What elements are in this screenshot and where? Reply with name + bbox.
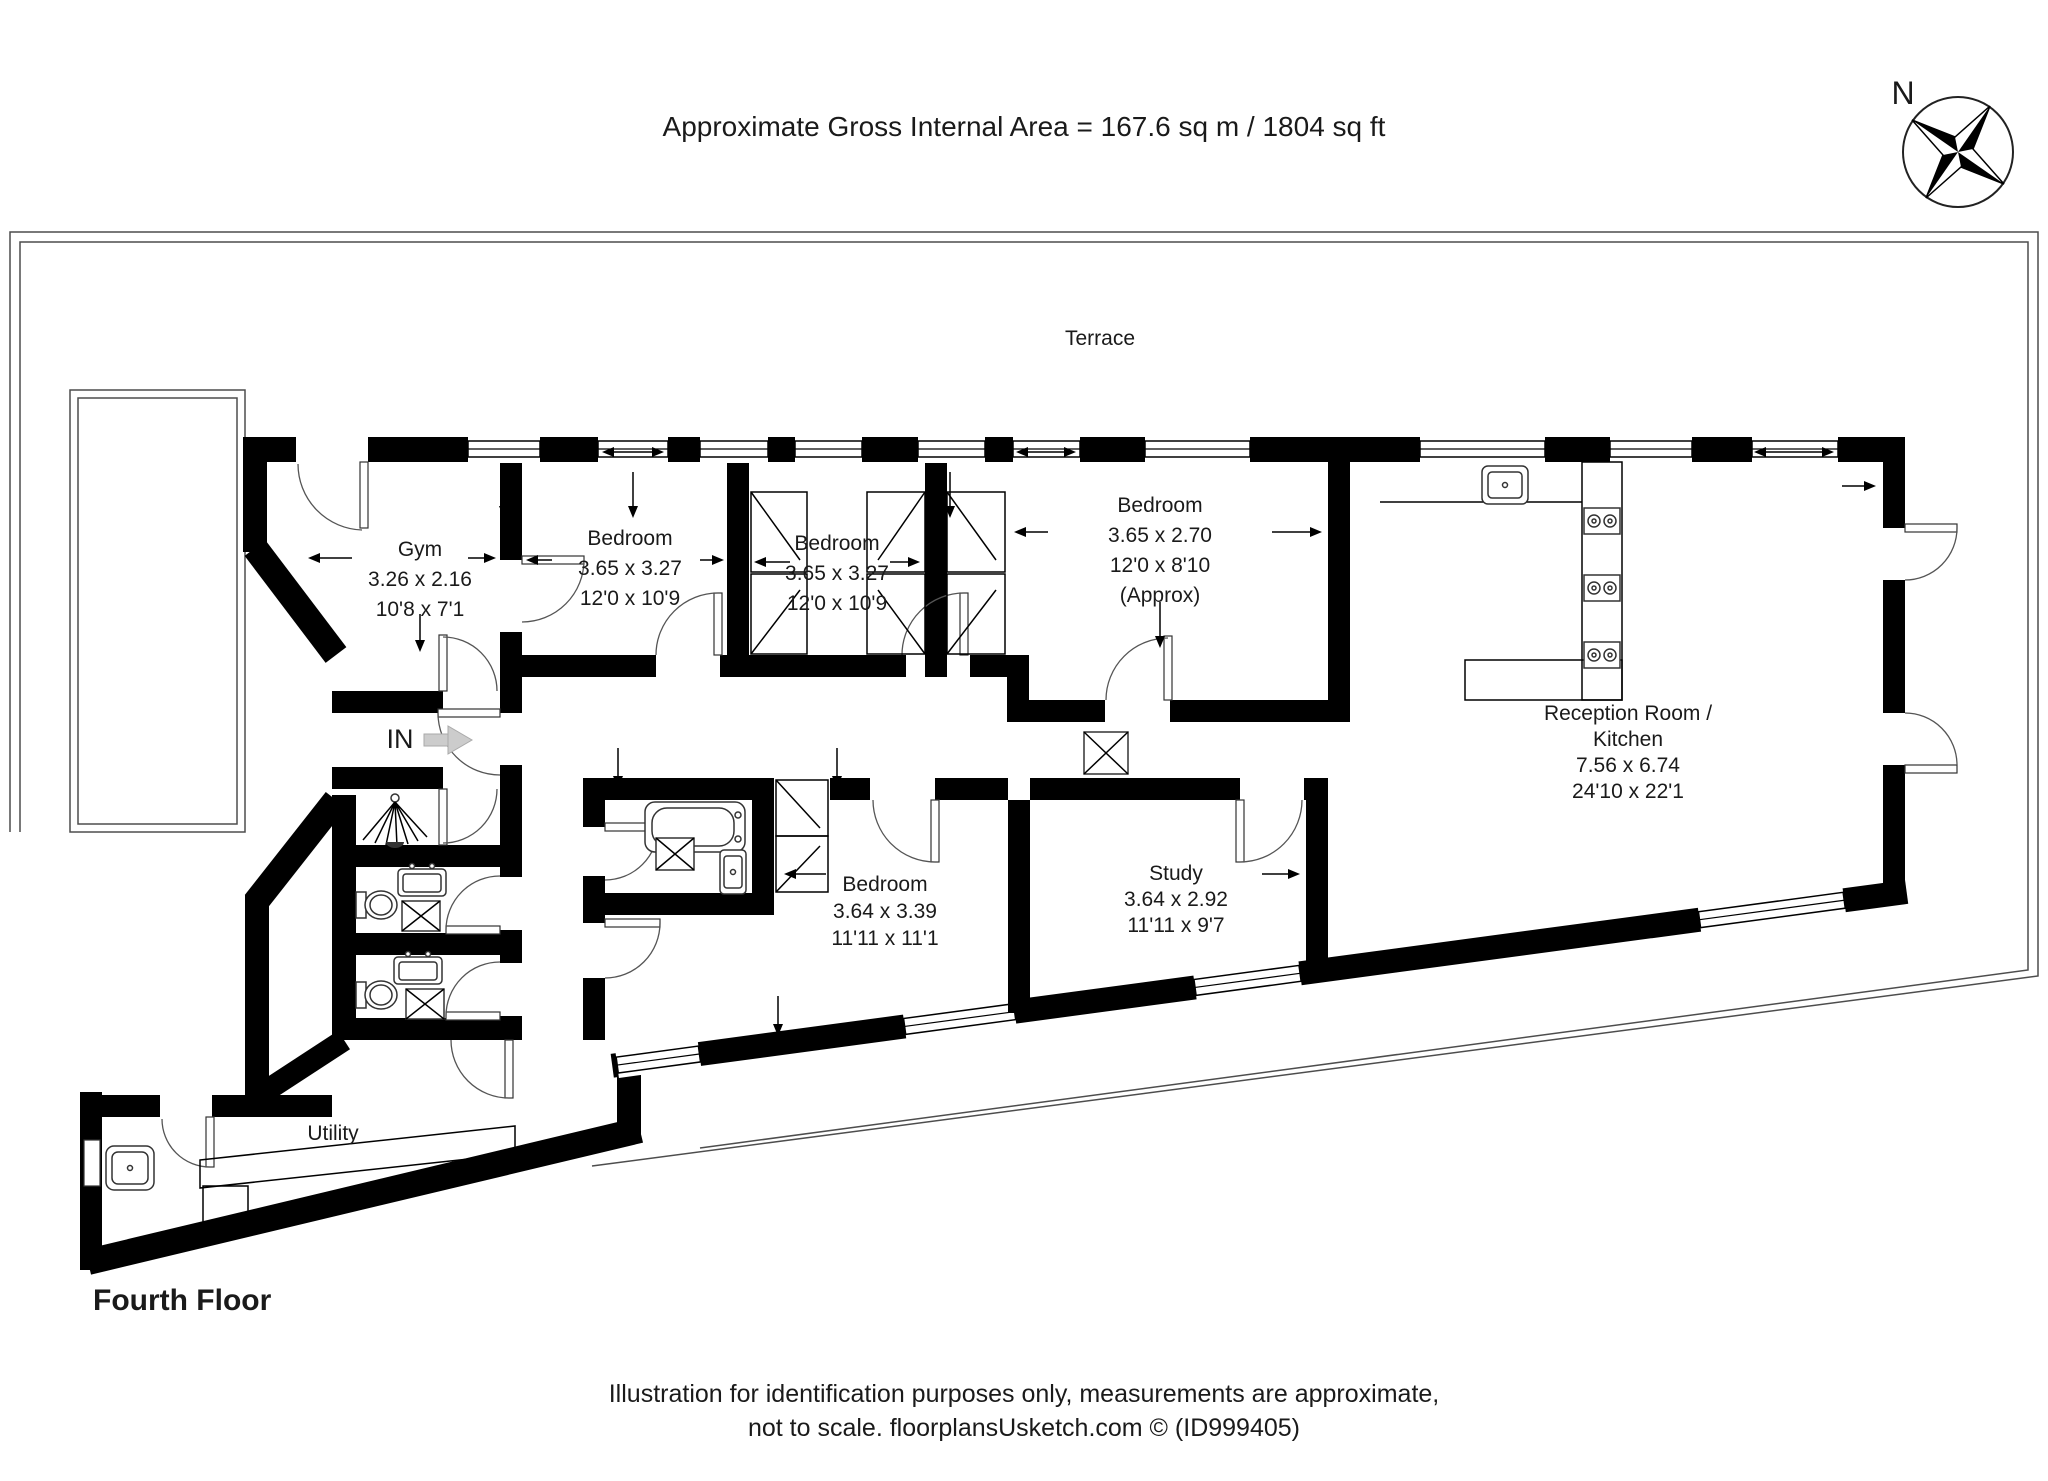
room-metric: 3.64 x 3.39 bbox=[833, 900, 937, 923]
room-name: Bedroom bbox=[794, 532, 879, 555]
bedroom3-door bbox=[1106, 636, 1172, 700]
room-metric: 3.65 x 3.27 bbox=[578, 557, 682, 580]
room-name: Utility bbox=[307, 1122, 359, 1145]
kitchen-sink-icon bbox=[1482, 466, 1528, 504]
hob-icon bbox=[1584, 642, 1620, 668]
hall-storage-box bbox=[1084, 732, 1128, 774]
room-imperial: 11'11 x 11'1 bbox=[831, 927, 938, 950]
room-name-line2: Kitchen bbox=[1593, 728, 1663, 751]
utility-side-door bbox=[84, 1140, 100, 1186]
floor-plan: Approximate Gross Internal Area = 167.6 … bbox=[0, 0, 2048, 1481]
room-name: Bedroom bbox=[587, 527, 672, 550]
wc2-door bbox=[446, 962, 500, 1020]
terrace-door-1 bbox=[1905, 524, 1957, 580]
hob-icon bbox=[1584, 508, 1620, 534]
page-title: Approximate Gross Internal Area = 167.6 … bbox=[663, 111, 1386, 142]
entrance-marker: IN bbox=[387, 724, 473, 754]
hall-gym-lobby-door bbox=[439, 635, 497, 691]
room-name: Study bbox=[1149, 862, 1203, 885]
window bbox=[1610, 436, 1692, 463]
room-imperial: 12'0 x 8'10 bbox=[1110, 554, 1210, 577]
footer-line1: Illustration for identification purposes… bbox=[609, 1380, 1440, 1408]
bedroom4-lobby-door bbox=[605, 919, 660, 978]
room-imperial: 12'0 x 10'9 bbox=[787, 592, 887, 615]
wc2-tray-icon bbox=[406, 989, 444, 1019]
room-metric: 3.65 x 3.27 bbox=[785, 562, 889, 585]
window bbox=[1145, 436, 1250, 463]
bathroom-sink-icon bbox=[720, 850, 746, 894]
room-reception-kitchen: Reception Room / Kitchen 7.56 x 6.74 24'… bbox=[1544, 702, 1712, 803]
room-metric: 3.64 x 2.92 bbox=[1124, 888, 1228, 911]
floorplan-page: Approximate Gross Internal Area = 167.6 … bbox=[0, 0, 2048, 1481]
entrance-label: IN bbox=[387, 724, 414, 754]
room-study: Study 3.64 x 2.92 11'11 x 9'7 bbox=[1124, 862, 1228, 937]
window bbox=[1193, 960, 1302, 1000]
toilet-icon bbox=[356, 981, 397, 1009]
room-bedroom-4: Bedroom 3.64 x 3.39 11'11 x 11'1 bbox=[831, 873, 938, 950]
room-name-line1: Reception Room / bbox=[1544, 702, 1712, 725]
window bbox=[1420, 436, 1545, 463]
gym-terrace-door bbox=[298, 462, 368, 530]
window bbox=[700, 436, 768, 463]
window bbox=[918, 436, 985, 463]
gym-bedroom1-door bbox=[522, 556, 584, 622]
terrace-door-2 bbox=[1905, 713, 1957, 773]
room-bedroom-1: Bedroom 3.65 x 3.27 12'0 x 10'9 bbox=[578, 527, 682, 610]
utility-vestibule-door bbox=[451, 1040, 513, 1098]
wc1-sink-icon bbox=[398, 864, 446, 897]
window bbox=[468, 436, 540, 463]
window bbox=[615, 1041, 701, 1078]
room-imperial: 11'11 x 9'7 bbox=[1127, 914, 1224, 937]
footer-line2: not to scale. floorplansUsketch.com © (I… bbox=[748, 1414, 1300, 1442]
wc1-door bbox=[446, 876, 500, 934]
utility-sink-icon bbox=[106, 1146, 154, 1190]
hall-shower-door bbox=[439, 789, 497, 845]
study-door bbox=[1236, 800, 1302, 862]
shower-tray-icon bbox=[656, 838, 694, 870]
window bbox=[903, 999, 1016, 1040]
room-imperial: 24'10 x 22'1 bbox=[1572, 780, 1684, 803]
room-note: (Approx) bbox=[1120, 584, 1201, 607]
room-name: Gym bbox=[398, 538, 442, 561]
window bbox=[795, 436, 862, 463]
wc2-sink-icon bbox=[394, 952, 442, 985]
bedroom4-hall-door bbox=[873, 800, 939, 862]
hob-icon bbox=[1584, 575, 1620, 601]
terrace-label: Terrace bbox=[1065, 327, 1135, 350]
floor-name: Fourth Floor bbox=[93, 1284, 272, 1317]
wc1-tray-icon bbox=[402, 901, 440, 931]
toilet-icon bbox=[356, 891, 397, 919]
window bbox=[1698, 887, 1846, 932]
room-name: Bedroom bbox=[1117, 494, 1202, 517]
room-metric: 3.26 x 2.16 bbox=[368, 568, 472, 591]
room-imperial: 10'8 x 7'1 bbox=[376, 598, 465, 621]
room-imperial: 12'0 x 10'9 bbox=[580, 587, 680, 610]
compass-north-label: N bbox=[1891, 75, 1914, 111]
compass-icon: N bbox=[1891, 75, 2013, 207]
room-metric: 3.65 x 2.70 bbox=[1108, 524, 1212, 547]
room-utility: Utility bbox=[307, 1122, 359, 1145]
shower-icon bbox=[363, 794, 427, 848]
bottom-diagonal-wall bbox=[611, 879, 1909, 1079]
kitchen-counter bbox=[1380, 462, 1622, 700]
room-metric: 7.56 x 6.74 bbox=[1576, 754, 1680, 777]
room-name: Bedroom bbox=[842, 873, 927, 896]
room-bedroom-3: Bedroom 3.65 x 2.70 12'0 x 8'10 (Approx) bbox=[1108, 494, 1212, 607]
room-gym: Gym 3.26 x 2.16 10'8 x 7'1 bbox=[368, 538, 472, 621]
room-bedroom-2: Bedroom 3.65 x 3.27 12'0 x 10'9 bbox=[785, 532, 889, 615]
entrance-arrow-icon bbox=[424, 726, 472, 754]
